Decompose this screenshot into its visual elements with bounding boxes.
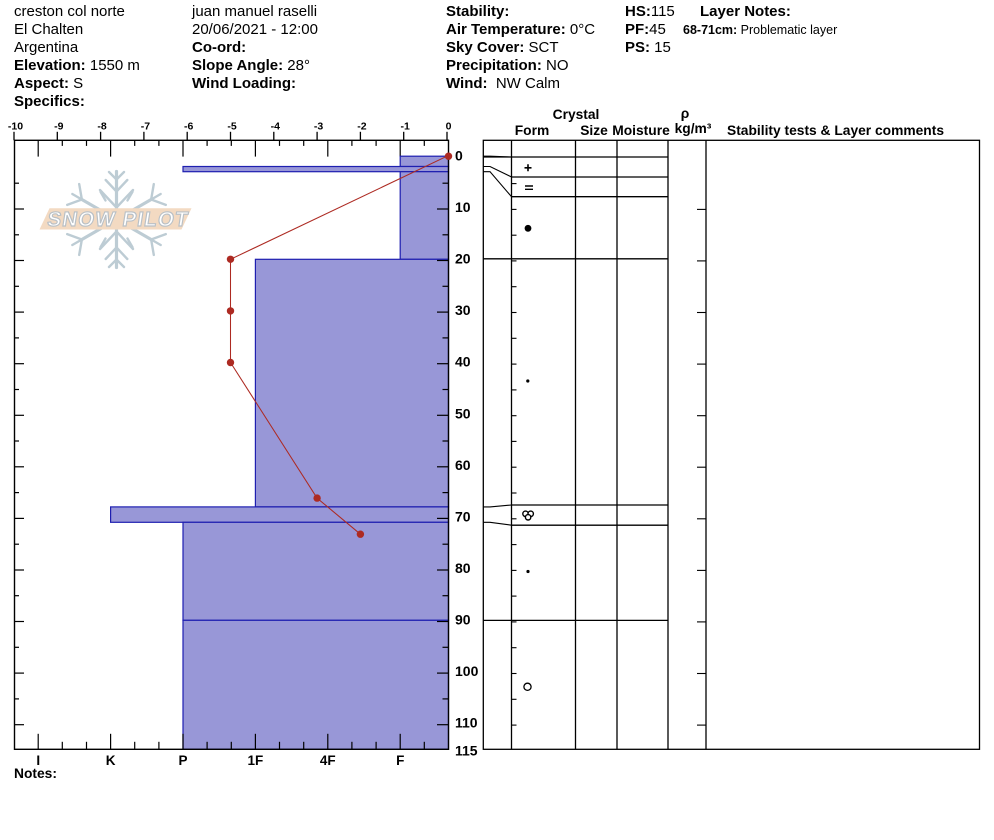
svg-text:10: 10 xyxy=(455,199,471,215)
svg-text:F: F xyxy=(396,753,404,768)
svg-text:30: 30 xyxy=(455,302,471,318)
svg-text:90: 90 xyxy=(455,612,471,628)
svg-text:-9: -9 xyxy=(54,121,63,133)
svg-text:115: 115 xyxy=(455,742,478,758)
svg-text:80: 80 xyxy=(455,560,471,576)
svg-text:20: 20 xyxy=(455,251,471,267)
svg-text:110: 110 xyxy=(455,715,478,731)
svg-text:50: 50 xyxy=(455,405,471,421)
svg-text:4F: 4F xyxy=(320,753,336,768)
svg-text:100: 100 xyxy=(455,663,479,679)
svg-text:-8: -8 xyxy=(97,121,106,133)
svg-text:1F: 1F xyxy=(248,753,264,768)
svg-text:-3: -3 xyxy=(314,121,323,133)
svg-text:0: 0 xyxy=(446,121,452,133)
svg-text:0: 0 xyxy=(455,147,463,163)
svg-text:-2: -2 xyxy=(357,121,366,133)
svg-text:-10: -10 xyxy=(8,121,23,133)
svg-text:-6: -6 xyxy=(184,121,193,133)
svg-text:40: 40 xyxy=(455,354,471,370)
svg-text:-7: -7 xyxy=(141,121,150,133)
svg-text:60: 60 xyxy=(455,457,471,473)
svg-text:-5: -5 xyxy=(227,121,236,133)
svg-text:-1: -1 xyxy=(401,121,410,133)
svg-text:K: K xyxy=(106,753,116,768)
svg-text:I: I xyxy=(36,753,40,768)
svg-text:SNOW PILOT: SNOW PILOT xyxy=(46,208,191,231)
svg-text:P: P xyxy=(178,753,187,768)
svg-text:70: 70 xyxy=(455,508,471,524)
svg-text:-4: -4 xyxy=(271,121,280,133)
